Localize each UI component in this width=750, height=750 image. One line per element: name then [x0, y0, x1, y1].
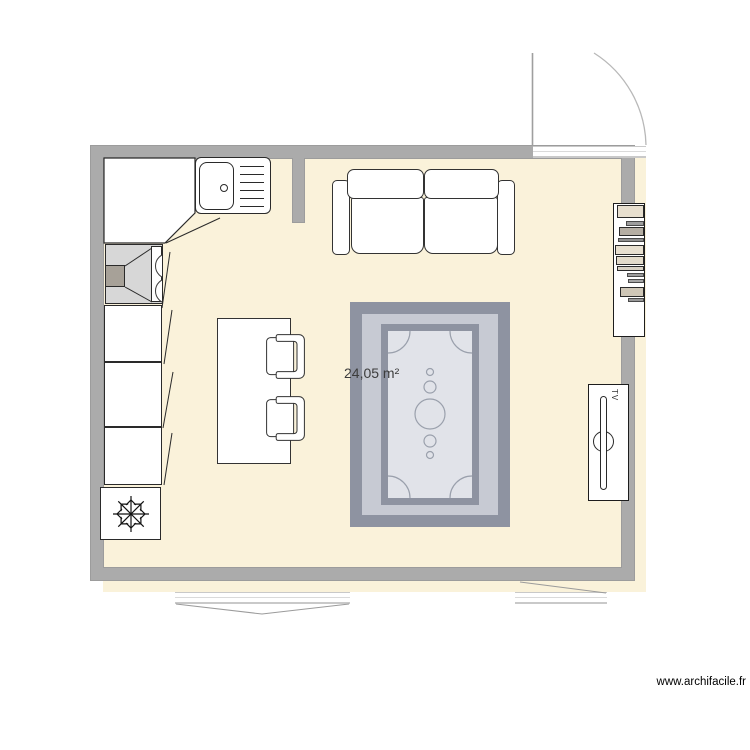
- floor-plan-canvas: TV 24,05 m² www.archifacile.fr: [0, 0, 750, 750]
- drainer-line: [240, 182, 264, 183]
- fridge-freezer[interactable]: [100, 487, 161, 540]
- kitchen-cabinet-2[interactable]: [104, 362, 162, 427]
- kitchen-stove[interactable]: [105, 244, 163, 304]
- sofa-back-cushion: [424, 169, 499, 199]
- rug-center: [388, 331, 472, 498]
- book: [617, 266, 644, 271]
- snowflake-icon: [109, 492, 153, 536]
- kitchen-sink[interactable]: [195, 157, 271, 214]
- room-area-label: 24,05 m²: [344, 365, 399, 381]
- drainer-line: [240, 190, 264, 191]
- chair-2[interactable]: [266, 396, 306, 441]
- window-leaves: [176, 604, 349, 614]
- book: [626, 221, 644, 226]
- kitchen-cabinet-1[interactable]: [104, 305, 162, 362]
- stove-vent: [105, 265, 125, 287]
- rug-pattern: [388, 331, 472, 498]
- door-bottom[interactable]: [515, 592, 607, 604]
- chair-1[interactable]: [266, 334, 306, 379]
- tv-label: TV: [610, 389, 619, 401]
- drainer-line: [240, 174, 264, 175]
- watermark: www.archifacile.fr: [657, 676, 746, 688]
- book: [617, 205, 644, 218]
- book: [619, 227, 644, 236]
- book: [615, 245, 644, 255]
- sofa[interactable]: [332, 169, 515, 255]
- sofa-seat-cushion: [351, 197, 424, 254]
- drainer-line: [240, 206, 264, 207]
- drainer-line: [240, 166, 264, 167]
- window-bottom[interactable]: [175, 592, 350, 604]
- sofa-back-cushion: [347, 169, 424, 199]
- book: [628, 298, 644, 302]
- kitchen-cabinet-3[interactable]: [104, 427, 162, 485]
- book: [618, 238, 644, 242]
- tv-screen: [600, 396, 607, 490]
- rug[interactable]: [350, 302, 510, 527]
- sofa-armrest-right: [497, 180, 515, 255]
- drainer-line: [240, 198, 264, 199]
- book: [616, 256, 644, 265]
- book: [620, 287, 644, 297]
- partition-wall[interactable]: [292, 158, 305, 223]
- entry-door-swing-arc: [594, 53, 646, 145]
- book: [628, 279, 644, 283]
- sink-basin: [199, 162, 234, 210]
- bookshelf[interactable]: [613, 203, 645, 337]
- sofa-seat-cushion: [424, 197, 498, 254]
- sink-drain-icon: [220, 184, 228, 192]
- tv-unit[interactable]: TV: [588, 384, 629, 501]
- entry-door-threshold[interactable]: [533, 146, 646, 158]
- book: [627, 273, 644, 277]
